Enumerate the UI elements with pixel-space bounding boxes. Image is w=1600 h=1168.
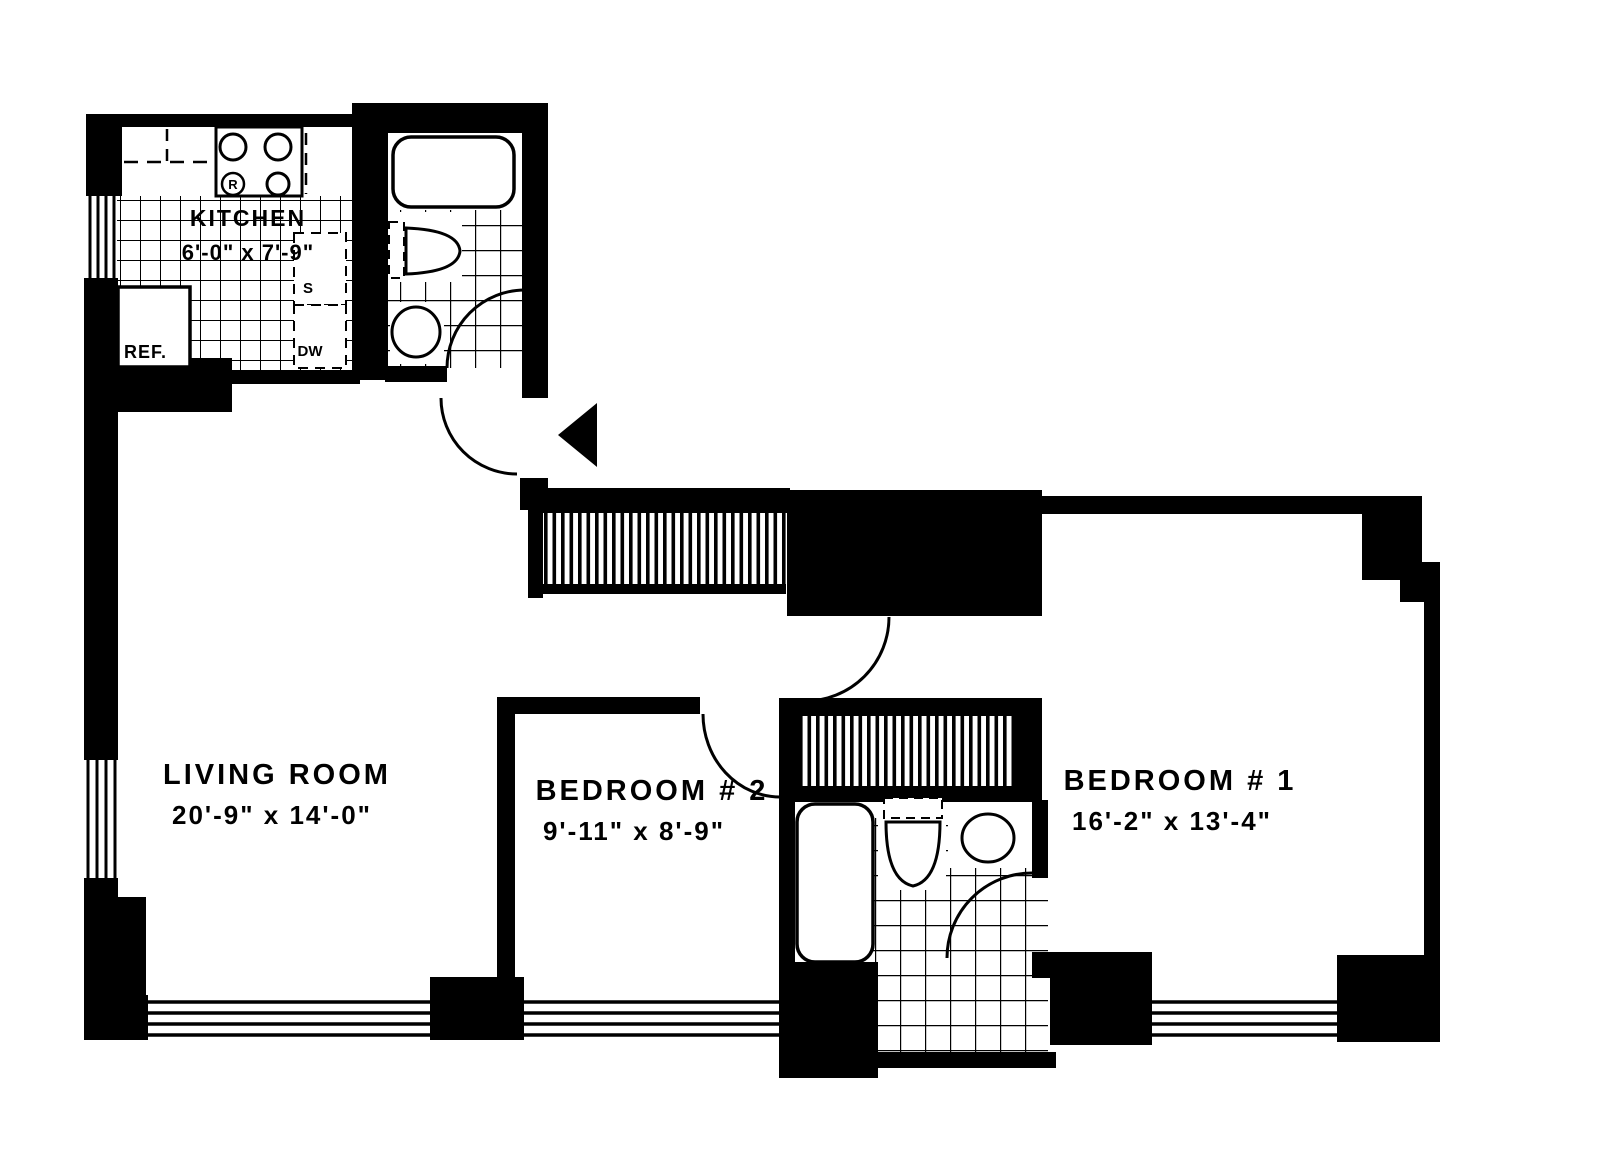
bedroom1-dims: 16'-2" x 13'-4" — [1072, 806, 1272, 836]
wall — [1337, 955, 1440, 1042]
burner-icon — [220, 134, 246, 160]
sink-1 — [392, 307, 440, 357]
wall — [84, 278, 118, 362]
floor-plan: R REF. S DW KITCHEN 6'-0" x 7'-9" — [0, 0, 1600, 1168]
wall — [86, 114, 360, 127]
range-label: R — [228, 177, 238, 192]
wall — [352, 103, 388, 380]
bathtub-2 — [797, 804, 873, 962]
sink-label: S — [303, 280, 313, 297]
wall — [1424, 580, 1440, 960]
bathtub-1 — [393, 137, 514, 207]
bedroom2-dims: 9'-11" x 8'-9" — [543, 816, 725, 846]
floorplan-page: R REF. S DW KITCHEN 6'-0" x 7'-9" — [0, 0, 1600, 1168]
living-room-dims: 20'-9" x 14'-0" — [172, 800, 372, 830]
bedroom1-label: BEDROOM # 1 — [1064, 765, 1297, 797]
kitchen-label: KITCHEN — [190, 205, 306, 231]
toilet-tank-2 — [884, 798, 942, 818]
wall — [797, 698, 1042, 716]
wall — [497, 697, 700, 714]
dishwasher-label: DW — [298, 343, 324, 360]
wall — [497, 697, 515, 1005]
hall-closet-hatch — [543, 513, 786, 586]
burner-icon — [267, 173, 289, 195]
sink-2 — [962, 814, 1014, 862]
wall — [1050, 952, 1152, 1045]
toilet-tank-1 — [389, 222, 404, 278]
living-room-label: LIVING ROOM — [163, 759, 391, 791]
wall — [86, 114, 122, 196]
wall — [352, 103, 548, 133]
wall — [522, 103, 548, 398]
wall — [779, 962, 878, 1078]
wall — [430, 977, 524, 1040]
wall — [528, 488, 790, 513]
bath2-closet-hatch — [800, 716, 1035, 788]
burner-icon — [265, 134, 291, 160]
wall — [84, 412, 118, 760]
refrigerator-label: REF. — [124, 342, 167, 362]
bedroom2-label: BEDROOM # 2 — [536, 775, 769, 807]
wall — [385, 366, 447, 382]
wall — [190, 370, 360, 384]
wall — [779, 802, 795, 968]
hall-closet-2-hatch — [850, 550, 1030, 606]
wall — [84, 995, 148, 1040]
kitchen-dims: 6'-0" x 7'-9" — [182, 240, 314, 265]
